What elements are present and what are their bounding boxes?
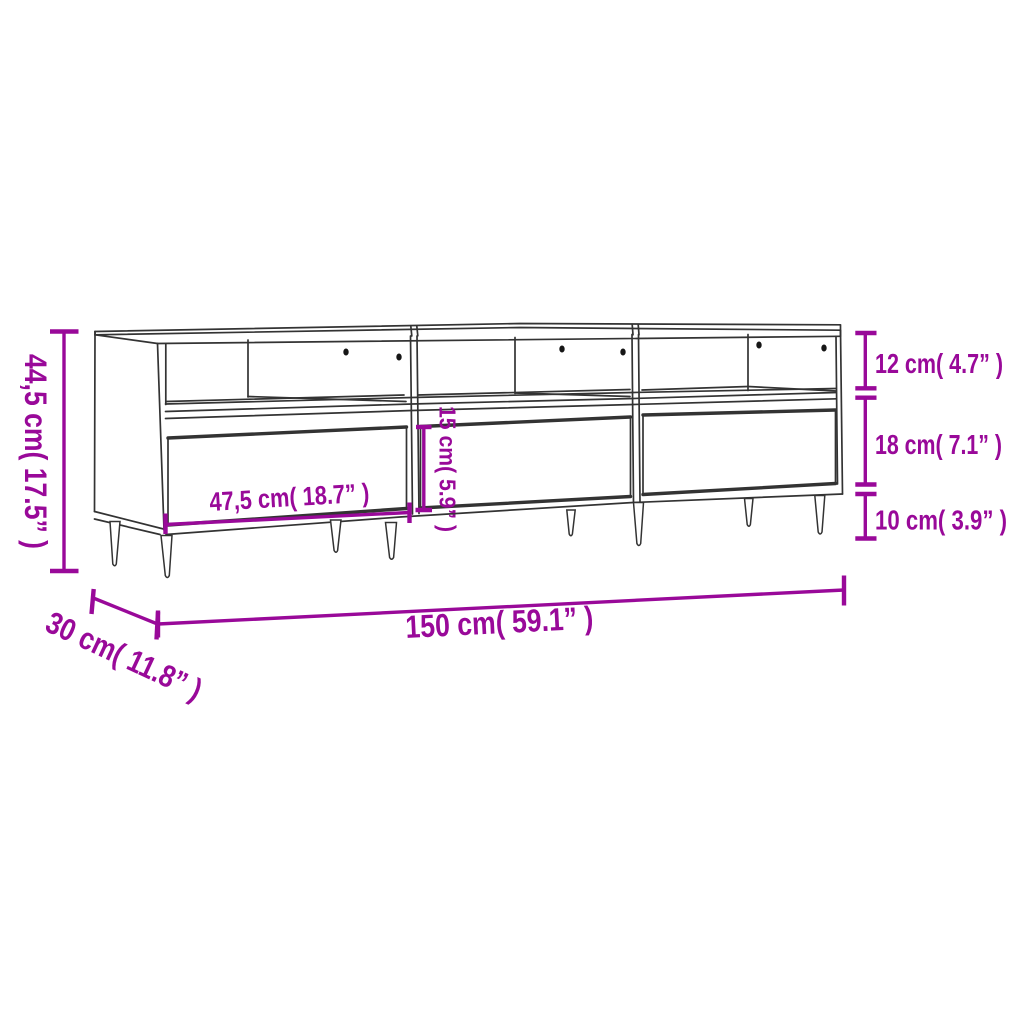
svg-text:12 cm( 4.7” ): 12 cm( 4.7” ) <box>875 348 1003 379</box>
svg-text:15 cm( 5.9” ): 15 cm( 5.9” ) <box>435 406 461 532</box>
svg-text:44,5 cm( 17.5” ): 44,5 cm( 17.5” ) <box>18 354 54 549</box>
svg-text:10 cm( 3.9” ): 10 cm( 3.9” ) <box>875 504 1007 535</box>
svg-text:18 cm( 7.1” ): 18 cm( 7.1” ) <box>875 429 1002 460</box>
